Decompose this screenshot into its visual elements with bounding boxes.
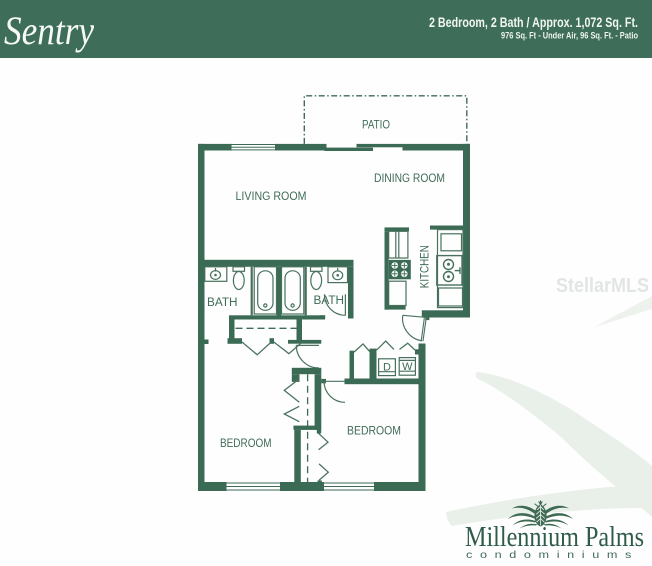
svg-text:W: W <box>402 361 413 373</box>
svg-text:976 Sq. Ft - Under Air, 96 Sq.: 976 Sq. Ft - Under Air, 96 Sq. Ft. - Pat… <box>501 31 639 41</box>
svg-text:BATH: BATH <box>314 295 345 307</box>
svg-text:condominiums: condominiums <box>466 550 639 561</box>
svg-text:BEDROOM: BEDROOM <box>347 426 401 438</box>
svg-text:PATIO: PATIO <box>362 120 390 132</box>
svg-text:StellarMLS: StellarMLS <box>556 275 649 297</box>
svg-text:BATH: BATH <box>207 297 238 309</box>
svg-text:BEDROOM: BEDROOM <box>220 438 272 450</box>
svg-text:LIVING ROOM: LIVING ROOM <box>236 191 307 203</box>
svg-text:DINING ROOM: DINING ROOM <box>374 173 445 185</box>
svg-text:D: D <box>383 362 391 374</box>
svg-text:2 Bedroom, 2 Bath / Approx. 1,: 2 Bedroom, 2 Bath / Approx. 1,072 Sq. Ft… <box>429 15 638 30</box>
svg-text:Sentry: Sentry <box>4 8 94 53</box>
svg-text:Millennium Palms: Millennium Palms <box>465 522 644 553</box>
svg-text:KITCHEN: KITCHEN <box>420 245 432 288</box>
